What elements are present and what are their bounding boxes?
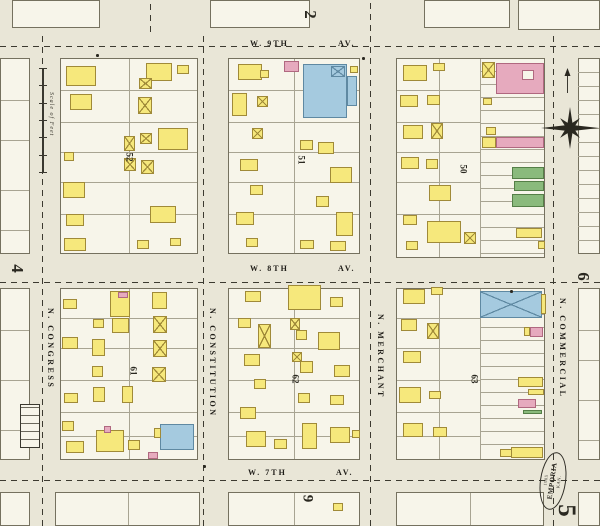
lot-line xyxy=(480,431,544,432)
building-frame xyxy=(302,423,317,449)
building-frame xyxy=(403,423,423,437)
building-frame xyxy=(150,206,176,223)
street-name: N. MERCHANT xyxy=(376,314,385,399)
building-frame xyxy=(128,440,140,450)
city-block xyxy=(424,0,510,28)
building-frame xyxy=(232,93,247,116)
building-frame xyxy=(64,393,78,403)
building-brick xyxy=(148,452,158,459)
building-frame xyxy=(66,66,96,86)
building-frame xyxy=(141,160,154,174)
block-number: 51 xyxy=(297,156,307,165)
building-frame xyxy=(334,365,350,377)
block-number: 61 xyxy=(129,367,139,376)
building-frame xyxy=(427,323,439,339)
building-frame xyxy=(158,128,188,150)
building-frame xyxy=(483,98,492,105)
building-frame xyxy=(258,324,271,348)
lot-line xyxy=(578,198,599,199)
building-frame xyxy=(154,428,161,438)
building-frame xyxy=(70,94,92,110)
street-name: N. CONSTITUTION xyxy=(208,308,217,418)
scale-bar-tick xyxy=(39,137,47,138)
building-frame xyxy=(238,64,262,80)
street-dash xyxy=(0,282,600,283)
lot-line xyxy=(578,240,599,241)
scale-bar-label: Scale of Feet xyxy=(48,92,54,136)
lot-line xyxy=(480,162,544,163)
building-frame xyxy=(298,393,310,403)
lot-line xyxy=(480,240,544,241)
block-number: 52 xyxy=(125,153,135,162)
building-frame xyxy=(240,407,256,419)
building-frame xyxy=(403,215,417,225)
street-suffix: AV. xyxy=(338,264,356,273)
inset-table xyxy=(20,404,40,448)
building-frame xyxy=(538,241,545,249)
building-frame xyxy=(318,332,340,350)
street-dash xyxy=(0,46,600,47)
building-frame xyxy=(300,240,314,249)
building-brick xyxy=(118,292,128,298)
building-frame xyxy=(330,241,346,251)
building-frame xyxy=(112,318,129,333)
compass-rose-icon xyxy=(538,66,600,158)
sanborn-map-page: W. 9THAV.W. 8THAV.W. 7THAV.N. CONGRESSN.… xyxy=(0,0,600,526)
building-frame xyxy=(92,366,103,377)
building-frame xyxy=(352,430,360,438)
street-name: N. CONGRESS xyxy=(46,308,55,389)
building-frame xyxy=(246,238,258,247)
street-suffix: AV. xyxy=(338,39,356,48)
building-courtyard xyxy=(522,70,534,80)
building-frame xyxy=(401,157,419,169)
building-stone xyxy=(331,66,345,77)
lot-line xyxy=(1,100,29,101)
building-frame xyxy=(236,212,254,225)
street-name: W. 7TH xyxy=(248,468,287,477)
building-frame xyxy=(401,319,417,331)
lot-line xyxy=(480,214,544,215)
building-frame xyxy=(252,128,263,139)
building-frame xyxy=(431,123,443,139)
lot-line xyxy=(578,184,599,185)
lot-line xyxy=(294,59,295,253)
building-brick xyxy=(518,399,536,408)
city-block xyxy=(578,492,600,526)
building-stone xyxy=(347,76,357,106)
building-frame xyxy=(482,137,496,148)
building-brick xyxy=(284,61,299,72)
building-frame xyxy=(62,337,78,349)
lot-line xyxy=(480,149,544,150)
building-frame xyxy=(300,140,313,150)
building-frame xyxy=(406,241,418,250)
scale-bar-tick xyxy=(39,120,47,121)
lot-line xyxy=(480,418,544,419)
building-frame xyxy=(500,449,512,457)
street-name: W. 9TH xyxy=(250,39,289,48)
corner-dot xyxy=(96,54,99,57)
building-frame xyxy=(257,96,268,107)
scale-bar-tick xyxy=(39,68,47,69)
building-frame xyxy=(403,125,423,139)
building-frame xyxy=(245,291,261,302)
building-stone xyxy=(480,291,542,318)
building-frame xyxy=(137,240,149,249)
lot-line xyxy=(397,152,480,153)
building-frame xyxy=(482,62,495,78)
building-frame xyxy=(429,185,451,201)
building-special xyxy=(514,181,544,191)
building-frame xyxy=(486,127,496,135)
lot-line xyxy=(578,170,599,171)
building-frame xyxy=(66,214,84,226)
lot-line xyxy=(61,412,197,413)
building-frame xyxy=(290,318,300,330)
street-suffix: AV. xyxy=(336,468,354,477)
building-frame xyxy=(528,389,544,395)
building-special xyxy=(523,410,542,414)
building-frame xyxy=(63,182,85,198)
building-frame xyxy=(152,367,166,382)
corner-dot xyxy=(362,57,365,60)
page-number: 2 xyxy=(302,10,319,19)
building-frame xyxy=(92,339,105,356)
building-frame xyxy=(431,287,443,295)
building-frame xyxy=(336,212,353,236)
lot-line xyxy=(1,140,29,141)
building-frame xyxy=(152,292,167,309)
building-frame xyxy=(254,379,266,389)
building-frame xyxy=(464,232,476,244)
building-brick xyxy=(530,327,543,337)
scale-bar-tick xyxy=(39,172,47,173)
building-frame xyxy=(427,95,440,105)
building-frame xyxy=(330,395,344,405)
building-frame xyxy=(140,133,152,144)
building-frame xyxy=(541,294,546,314)
lot-line xyxy=(578,212,599,213)
building-frame xyxy=(330,167,352,183)
building-frame xyxy=(93,387,105,402)
lot-line xyxy=(61,122,197,123)
building-frame xyxy=(250,185,263,195)
building-frame xyxy=(333,503,343,511)
street-dash xyxy=(0,480,600,481)
lot-line xyxy=(397,348,480,349)
lot-line xyxy=(229,122,359,123)
building-special xyxy=(512,194,544,207)
building-frame xyxy=(403,65,427,81)
lot-line xyxy=(480,340,544,341)
city-block xyxy=(518,0,600,30)
building-frame xyxy=(170,238,181,246)
page-number: 6 xyxy=(575,272,592,281)
building-frame xyxy=(427,221,461,243)
building-stone xyxy=(160,424,194,450)
building-frame xyxy=(318,142,334,154)
building-frame xyxy=(316,196,329,207)
lot-line xyxy=(61,380,197,381)
building-brick xyxy=(496,63,544,94)
building-frame xyxy=(330,427,350,443)
street-name: N. COMMERCIAL xyxy=(558,298,567,399)
page-number: 9 xyxy=(299,495,314,503)
city-block xyxy=(0,492,30,526)
street-dash xyxy=(150,0,151,32)
block-number: 63 xyxy=(470,375,480,384)
building-frame xyxy=(244,354,260,366)
building-frame xyxy=(238,318,251,328)
building-frame xyxy=(433,63,445,71)
lot-line xyxy=(1,190,29,191)
lot-line xyxy=(397,380,480,381)
building-frame xyxy=(62,421,74,431)
lot-line xyxy=(61,348,197,349)
building-frame xyxy=(63,299,77,309)
lot-line xyxy=(579,400,599,401)
building-frame xyxy=(153,316,167,333)
building-frame xyxy=(433,427,447,437)
lot-line xyxy=(480,444,544,445)
city-block xyxy=(210,0,310,28)
lot-line xyxy=(1,330,29,331)
building-frame xyxy=(139,78,152,89)
building-frame xyxy=(518,377,543,387)
building-frame xyxy=(64,152,74,161)
street-dash xyxy=(370,0,371,526)
lot-line xyxy=(480,366,544,367)
city-block xyxy=(12,0,100,28)
building-frame xyxy=(64,238,86,251)
page-number: 5 xyxy=(554,504,579,517)
building-frame xyxy=(296,330,307,340)
building-frame xyxy=(66,441,84,453)
building-frame xyxy=(246,431,266,447)
lot-line xyxy=(397,412,480,413)
building-frame xyxy=(330,297,343,307)
building-frame xyxy=(426,159,438,169)
lot-line xyxy=(579,360,599,361)
lot-line xyxy=(294,493,295,525)
building-frame xyxy=(122,386,133,403)
lot-line xyxy=(578,226,599,227)
building-brick xyxy=(496,137,544,148)
lot-line xyxy=(61,318,197,319)
building-frame xyxy=(400,95,418,107)
building-frame xyxy=(274,439,287,449)
lot-line xyxy=(480,110,544,111)
building-frame xyxy=(260,70,269,78)
block-number: 62 xyxy=(291,375,301,384)
lot-line xyxy=(229,152,359,153)
lot-line xyxy=(397,90,480,91)
building-frame xyxy=(511,447,543,458)
lot-line xyxy=(128,493,129,525)
lot-line xyxy=(579,330,599,331)
building-brick xyxy=(104,426,111,433)
building-frame xyxy=(138,97,152,114)
building-frame xyxy=(300,361,313,373)
lot-line xyxy=(480,353,544,354)
corner-dot xyxy=(510,290,513,293)
building-frame xyxy=(177,65,189,74)
building-frame xyxy=(403,351,421,363)
city-block xyxy=(0,58,30,254)
lot-line xyxy=(397,182,480,183)
street-name: W. 8TH xyxy=(250,264,289,273)
scale-bar-tick xyxy=(39,155,47,156)
building-frame xyxy=(403,289,425,304)
page-number: 4 xyxy=(9,264,26,273)
building-frame xyxy=(429,391,441,399)
lot-line xyxy=(61,90,197,91)
lot-line xyxy=(579,440,599,441)
corner-dot xyxy=(203,465,206,468)
building-frame xyxy=(96,430,124,452)
lot-line xyxy=(480,253,544,254)
lot-line xyxy=(480,123,544,124)
building-frame xyxy=(350,66,358,73)
block-number: 50 xyxy=(459,165,469,174)
building-frame xyxy=(153,340,167,357)
city-block xyxy=(578,288,600,460)
lot-line xyxy=(1,380,29,381)
building-frame xyxy=(399,387,421,403)
street-dash xyxy=(203,32,204,526)
scale-bar-tick xyxy=(39,85,47,86)
building-frame xyxy=(93,319,104,328)
building-special xyxy=(512,167,544,179)
survey-stamp-text: 1905EMPORIAKAN. xyxy=(542,461,565,500)
lot-line xyxy=(470,493,471,525)
building-frame xyxy=(124,136,135,151)
building-frame xyxy=(516,228,542,238)
building-frame xyxy=(240,159,258,171)
lot-line xyxy=(1,230,29,231)
building-frame xyxy=(288,285,321,310)
scale-bar-tick xyxy=(39,103,47,104)
